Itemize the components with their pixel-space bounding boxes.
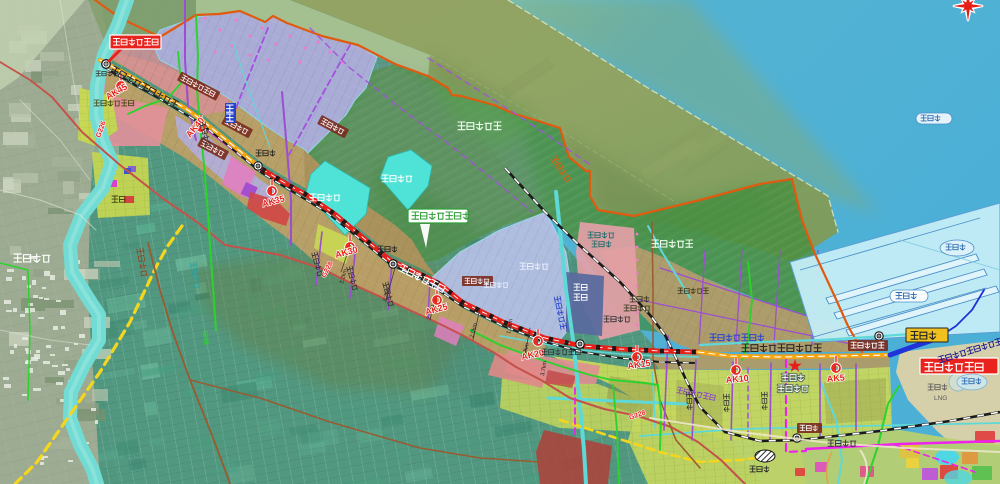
svg-text:AK10: AK10 (725, 373, 749, 385)
svg-text:LNG: LNG (934, 395, 947, 402)
svg-text:AK5: AK5 (826, 372, 845, 384)
svg-text:S226: S226 (201, 330, 209, 346)
